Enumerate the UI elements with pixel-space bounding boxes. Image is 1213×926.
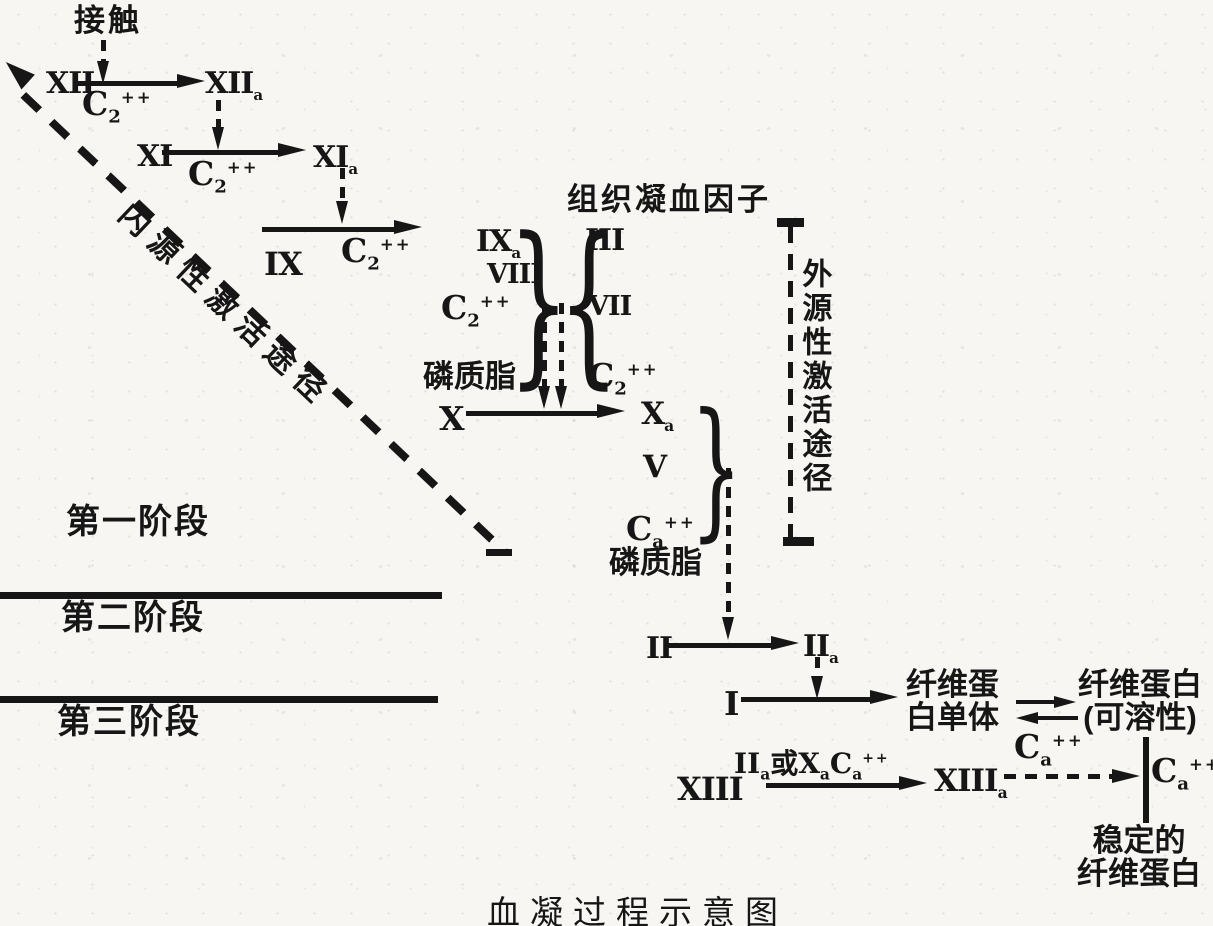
extrinsic-pathway-label: 外源性激活途径: [797, 258, 829, 496]
stage-1-label: 第一阶段: [66, 504, 210, 541]
stage-2-label: 第二阶段: [61, 600, 205, 637]
factor-i: I: [724, 684, 738, 723]
extrinsic-bracket-bottom-bar: [783, 537, 814, 546]
intrinsic-line-end-dash: [486, 549, 512, 556]
extrinsic-bracket-top-bar: [777, 218, 804, 227]
stabilization-line: [1143, 737, 1149, 823]
coagulation-diagram: 接触 XII C2++ XIIa XI C2++ XIa IX C2++ 内源性…: [0, 0, 1213, 926]
factor-xia: XIa: [313, 140, 357, 178]
contact-label: 接触: [74, 4, 142, 37]
phospholipid-lower-label: 磷质脂: [609, 546, 702, 579]
factor-v: V: [643, 449, 666, 485]
calcium-polymerization: Ca++: [1014, 727, 1084, 771]
fibrin-monomer-label: 纤维蛋 白单体: [906, 668, 999, 735]
phospholipid-upper-label: 磷质脂: [423, 360, 516, 393]
factor-xi: XI: [137, 139, 172, 174]
factor-vii: VII: [588, 291, 631, 322]
factor-xiii: XIII: [677, 770, 743, 808]
factor-xiia: XIIa: [205, 66, 262, 104]
stage-3-label: 第三阶段: [57, 704, 201, 741]
calcium-extrinsic-complex: C2++: [588, 356, 659, 400]
calcium-xii: C2++: [82, 84, 153, 128]
intrinsic-line-arrowhead: [0, 55, 35, 90]
factor-ii: II: [646, 631, 672, 666]
stage-divider-2: [0, 696, 438, 703]
extrinsic-bracket-dashed-line: [788, 227, 793, 538]
fibrin-soluble-label: 纤维蛋白 (可溶性): [1078, 668, 1202, 735]
factor-xiiia: XIIIa: [934, 763, 1007, 802]
xiii-activators-label: IIa或XaCa++: [734, 742, 890, 784]
factor-iia: IIa: [803, 629, 838, 667]
factor-ix: IX: [264, 245, 302, 283]
calcium-xi: C2++: [188, 154, 259, 198]
calcium-intrinsic-complex: C2++: [441, 288, 512, 332]
calcium-ix: C2++: [341, 231, 412, 275]
factor-iii: III: [585, 223, 624, 258]
stage-divider-1: [0, 592, 442, 599]
stable-fibrin-label: 稳定的 纤维蛋白: [1077, 824, 1201, 891]
diagram-caption: 血凝过程示意图: [487, 886, 788, 926]
factor-xa: Xa: [641, 396, 673, 435]
brace-prothrombinase-complex: }: [690, 400, 742, 538]
factor-x: X: [439, 399, 464, 438]
calcium-stabilization: Ca++: [1151, 751, 1213, 795]
